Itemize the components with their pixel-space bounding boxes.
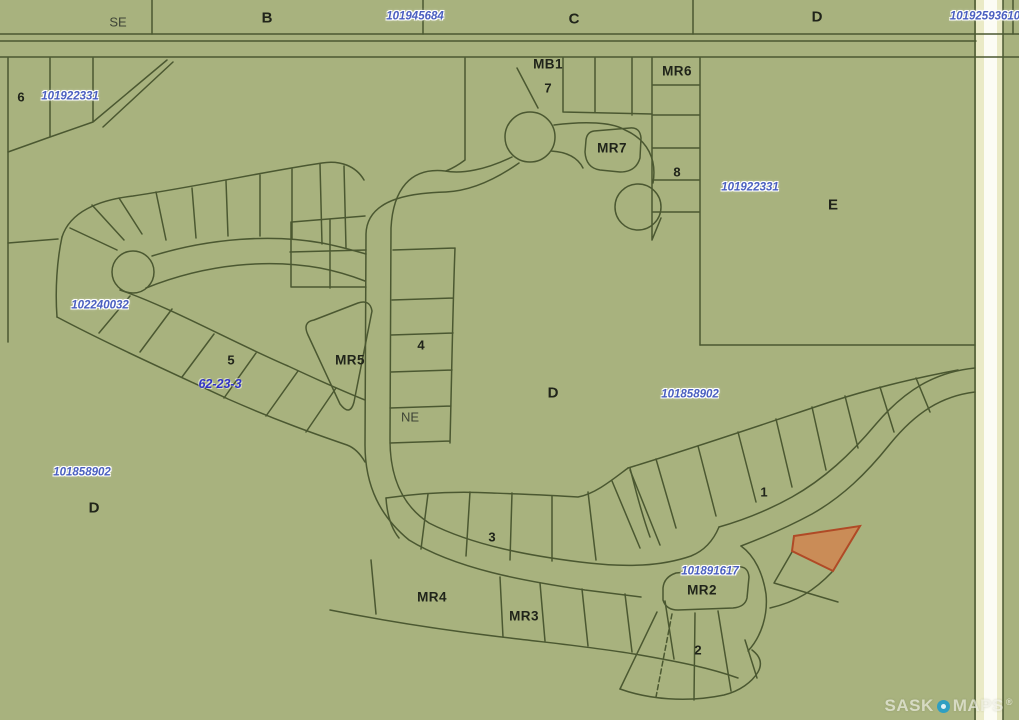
lot3-row-top-edge xyxy=(386,468,628,498)
top-row-dividers xyxy=(152,0,693,34)
mb1-road-south-edge xyxy=(551,151,583,168)
lot1-row-nw-edge xyxy=(628,370,958,468)
lower-band-dividers xyxy=(99,296,336,432)
se-road-se-edge xyxy=(741,392,975,546)
watermark-sask-text: SASK xyxy=(885,696,934,716)
parcel-boundaries xyxy=(0,0,1019,720)
watermark-registered-mark: ® xyxy=(1006,697,1013,707)
map-canvas[interactable]: SEB101945684CD101925936106101922331MB17M… xyxy=(0,0,1019,720)
west-road-south-edge xyxy=(146,264,365,288)
upper-fan-outer-edge xyxy=(62,162,364,237)
west-road-north-edge xyxy=(152,238,366,256)
se-road-nw-edge xyxy=(719,368,975,527)
watermark-maps-text: MAPS xyxy=(953,696,1004,716)
topleft-parcels xyxy=(8,58,173,152)
west-outer-boundary xyxy=(56,237,62,317)
parcel-map-svg xyxy=(0,0,1019,720)
west-connector xyxy=(8,239,58,243)
mr6-column xyxy=(652,58,700,345)
map-pin-icon xyxy=(937,700,950,713)
mr3-lot-dividers xyxy=(371,560,674,659)
mr2-parcel xyxy=(663,567,749,610)
east-lot-column xyxy=(390,248,455,443)
lower-band-nw-edge xyxy=(120,290,365,400)
lot2-dashed-divider xyxy=(656,614,672,697)
lot1-row-dividers xyxy=(630,378,930,537)
upper-fan-lot-dividers xyxy=(70,164,346,250)
saskmaps-watermark: SASK MAPS ® xyxy=(885,696,1014,716)
mr2-wrap-road-edge xyxy=(741,546,766,651)
selected-parcel-highlight[interactable] xyxy=(792,526,860,571)
mr5-parcel xyxy=(306,302,372,410)
lot2-fan-outer-arc xyxy=(620,650,760,699)
main-road-west-edge xyxy=(365,163,641,597)
mr4-south-boundary xyxy=(330,610,738,678)
vertical-road xyxy=(976,0,1003,720)
cul-de-sac-mr7 xyxy=(615,184,661,230)
cul-de-sac-mb1 xyxy=(505,112,555,162)
lot3-row-dividers xyxy=(386,470,660,561)
